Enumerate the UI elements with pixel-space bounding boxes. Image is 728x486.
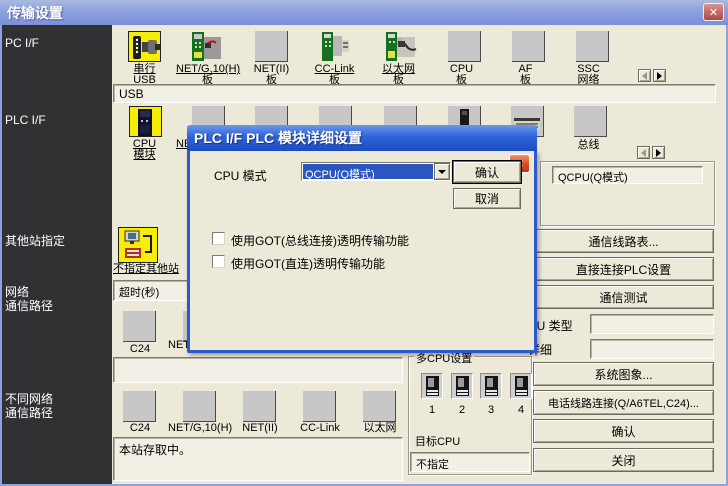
diff-network-c24-icon[interactable] bbox=[123, 391, 156, 422]
section-label-pc-if: PC I/F bbox=[5, 36, 39, 50]
plc-if-bus-icon[interactable] bbox=[574, 106, 607, 137]
pc-if-cclink-icon[interactable] bbox=[319, 31, 352, 62]
pc-if-serial-usb-label[interactable]: 串行 USB bbox=[113, 64, 176, 86]
diff-network-c24-label[interactable]: C24 bbox=[108, 423, 172, 434]
multi-cpu-4-label: 4 bbox=[510, 405, 532, 416]
diff-network-net2-label[interactable]: NET(II) bbox=[228, 423, 292, 434]
pc-if-scroll-right-button[interactable] bbox=[653, 69, 666, 82]
got-bus-transparent-checkbox[interactable] bbox=[212, 232, 225, 245]
cclink-board-icon bbox=[319, 31, 352, 62]
target-cpu-value: 不指定 bbox=[411, 453, 529, 472]
left-arrow-icon bbox=[641, 149, 646, 157]
multi-cpu-2-button[interactable] bbox=[451, 373, 473, 399]
phone-line-connection-button[interactable]: 电话线路连接(Q/A6TEL,C24)... bbox=[533, 390, 714, 415]
dialog-titlebar: PLC I/F PLC 模块详细设置 bbox=[187, 125, 537, 151]
diff-network-cclink-label[interactable]: CC-Link bbox=[288, 423, 352, 434]
plc-if-scroll-right-button[interactable] bbox=[652, 146, 665, 159]
multi-cpu-3-label: 3 bbox=[480, 405, 502, 416]
pc-if-netg-label[interactable]: NET/G,10(H) 板 bbox=[176, 64, 239, 86]
section-label-diff-network-route: 不同网络 通信路径 bbox=[5, 392, 53, 420]
no-other-station-label[interactable]: 不指定其他站 bbox=[101, 264, 191, 275]
cpu-mode-dropdown[interactable]: QCPU(Q模式) bbox=[301, 162, 451, 181]
diff-network-cclink-icon[interactable] bbox=[303, 391, 336, 422]
pc-if-af-board-icon[interactable] bbox=[512, 31, 545, 62]
pc-if-cclink-label[interactable]: CC-Link 板 bbox=[303, 64, 366, 86]
window-title: 传输设置 bbox=[0, 3, 63, 23]
target-cpu-field: 不指定 bbox=[410, 452, 530, 472]
pc-if-ethernet-label[interactable]: 以太网 板 bbox=[367, 64, 430, 86]
plc-if-scroll-left-button[interactable] bbox=[637, 146, 650, 159]
plc-if-cpu-module-icon[interactable] bbox=[129, 106, 162, 137]
left-arrow-icon bbox=[642, 72, 647, 80]
dialog-ok-button[interactable]: 确认 bbox=[453, 161, 521, 183]
pc-if-cpu-board-label[interactable]: CPU 板 bbox=[430, 64, 493, 86]
dialog-cancel-button[interactable]: 取消 bbox=[453, 188, 521, 209]
pc-if-scroll-left-button[interactable] bbox=[638, 69, 651, 82]
ethernet-board-icon bbox=[384, 31, 417, 62]
network-route-display-field bbox=[113, 357, 403, 383]
comm-line-table-button[interactable]: 通信线路表... bbox=[533, 229, 714, 253]
detail-value bbox=[591, 340, 713, 342]
diff-network-netg-label[interactable]: NET/G,10(H) bbox=[168, 423, 232, 434]
got-direct-transparent-checkbox[interactable] bbox=[212, 255, 225, 268]
pc-if-netg-icon[interactable] bbox=[190, 31, 223, 62]
plc-mode-field: QCPU(Q模式) bbox=[552, 166, 703, 184]
got-bus-transparent-label: 使用GOT(总线连接)透明传输功能 bbox=[231, 232, 409, 249]
main-ok-button[interactable]: 确认 bbox=[533, 419, 714, 443]
cpu-type-field bbox=[590, 314, 714, 334]
serial-usb-icon bbox=[129, 32, 162, 63]
right-arrow-icon bbox=[657, 72, 662, 80]
direct-plc-setting-button[interactable]: 直接连接PLC设置 bbox=[533, 257, 714, 281]
multi-cpu-4-button[interactable] bbox=[510, 373, 532, 399]
multi-cpu-1-label: 1 bbox=[421, 405, 443, 416]
cpu-type-value bbox=[591, 315, 713, 317]
plc-mode-value: QCPU(Q模式) bbox=[553, 167, 702, 185]
comm-test-button[interactable]: 通信测试 bbox=[533, 285, 714, 309]
chevron-down-icon bbox=[438, 170, 446, 174]
window-titlebar: 传输设置 bbox=[0, 0, 728, 25]
netg-board-icon bbox=[190, 31, 223, 62]
pc-if-cpu-board-icon[interactable] bbox=[448, 31, 481, 62]
right-arrow-icon bbox=[656, 149, 661, 157]
multi-cpu-1-button[interactable] bbox=[421, 373, 443, 399]
pc-if-ssc-icon[interactable] bbox=[576, 31, 609, 62]
pc-if-ssc-label[interactable]: SSC 网络 bbox=[557, 64, 620, 86]
network-route-c24-label[interactable]: C24 bbox=[108, 344, 172, 355]
cpu-mode-selected-value: QCPU(Q模式) bbox=[303, 164, 433, 179]
section-label-other-station: 其他站指定 bbox=[5, 234, 65, 248]
pc-if-af-board-label[interactable]: AF 板 bbox=[494, 64, 557, 86]
pc-if-value-field: USB bbox=[113, 84, 716, 103]
main-close-button[interactable]: 关闭 bbox=[533, 448, 714, 472]
pc-if-net2-icon[interactable] bbox=[255, 31, 288, 62]
cpu-module-icon bbox=[130, 107, 163, 138]
diff-network-netg-icon[interactable] bbox=[183, 391, 216, 422]
access-status-text: 本站存取中。 bbox=[114, 438, 402, 458]
access-status-box: 本站存取中。 bbox=[113, 437, 403, 481]
plc-if-cpu-module-label[interactable]: CPU 模块 bbox=[113, 139, 176, 161]
section-label-plc-if: PLC I/F bbox=[5, 113, 46, 127]
pc-if-serial-usb-icon[interactable] bbox=[128, 31, 161, 62]
plc-if-detail-dialog: PLC I/F PLC 模块详细设置 ✕ CPU 模式 QCPU(Q模式) 确认… bbox=[187, 151, 537, 353]
no-other-station-icon[interactable] bbox=[118, 227, 158, 263]
pc-if-ethernet-icon[interactable] bbox=[384, 31, 417, 62]
section-label-network-route: 网络 通信路径 bbox=[5, 285, 53, 313]
close-icon: ✕ bbox=[709, 6, 718, 19]
diff-network-ethernet-label[interactable]: 以太网 bbox=[348, 423, 412, 434]
system-image-button[interactable]: 系统图象... bbox=[533, 362, 714, 386]
dialog-title: PLC I/F PLC 模块详细设置 bbox=[187, 128, 362, 148]
diff-network-ethernet-icon[interactable] bbox=[363, 391, 396, 422]
target-cpu-label: 目标CPU bbox=[415, 433, 460, 449]
multi-cpu-3-button[interactable] bbox=[480, 373, 502, 399]
pc-if-net2-label[interactable]: NET(II) 板 bbox=[240, 64, 303, 86]
cpu-mode-label: CPU 模式 bbox=[214, 167, 267, 184]
network-route-c24-icon[interactable] bbox=[123, 311, 156, 342]
window-close-button[interactable]: ✕ bbox=[703, 3, 724, 21]
dropdown-button[interactable] bbox=[434, 163, 450, 180]
diff-network-net2-icon[interactable] bbox=[243, 391, 276, 422]
got-direct-transparent-label: 使用GOT(直连)透明传输功能 bbox=[231, 255, 385, 272]
other-station-icon bbox=[119, 228, 159, 264]
multi-cpu-groupbox: 多CPU设置 1 2 3 4 目标CPU 不指定 bbox=[408, 356, 532, 475]
multi-cpu-2-label: 2 bbox=[451, 405, 473, 416]
detail-field bbox=[590, 339, 714, 359]
pc-if-value: USB bbox=[114, 85, 715, 101]
transfer-setup-window: 传输设置 ✕ PC I/F PLC I/F 其他站指定 网络 通信路径 不同网络… bbox=[0, 0, 728, 486]
plc-if-bus-label[interactable]: 总线 bbox=[557, 140, 620, 151]
